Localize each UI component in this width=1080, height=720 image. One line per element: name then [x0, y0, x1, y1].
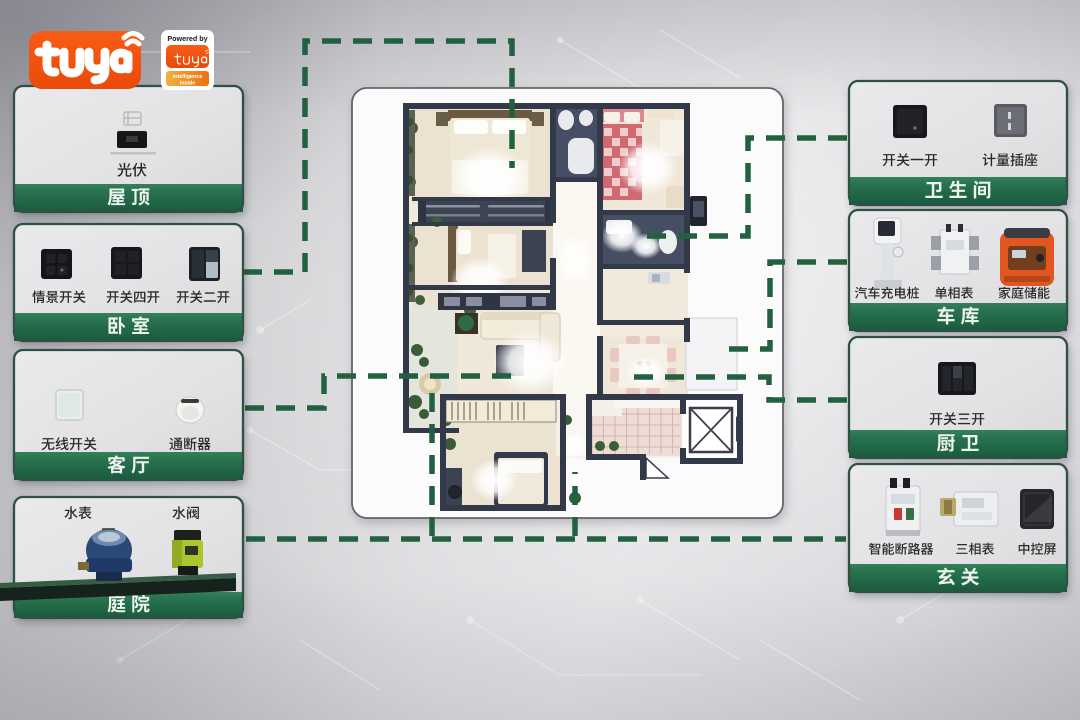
svg-text:Powered by: Powered by — [167, 34, 207, 43]
svg-text:inside: inside — [180, 81, 196, 87]
svg-text:intelligence: intelligence — [173, 74, 203, 80]
